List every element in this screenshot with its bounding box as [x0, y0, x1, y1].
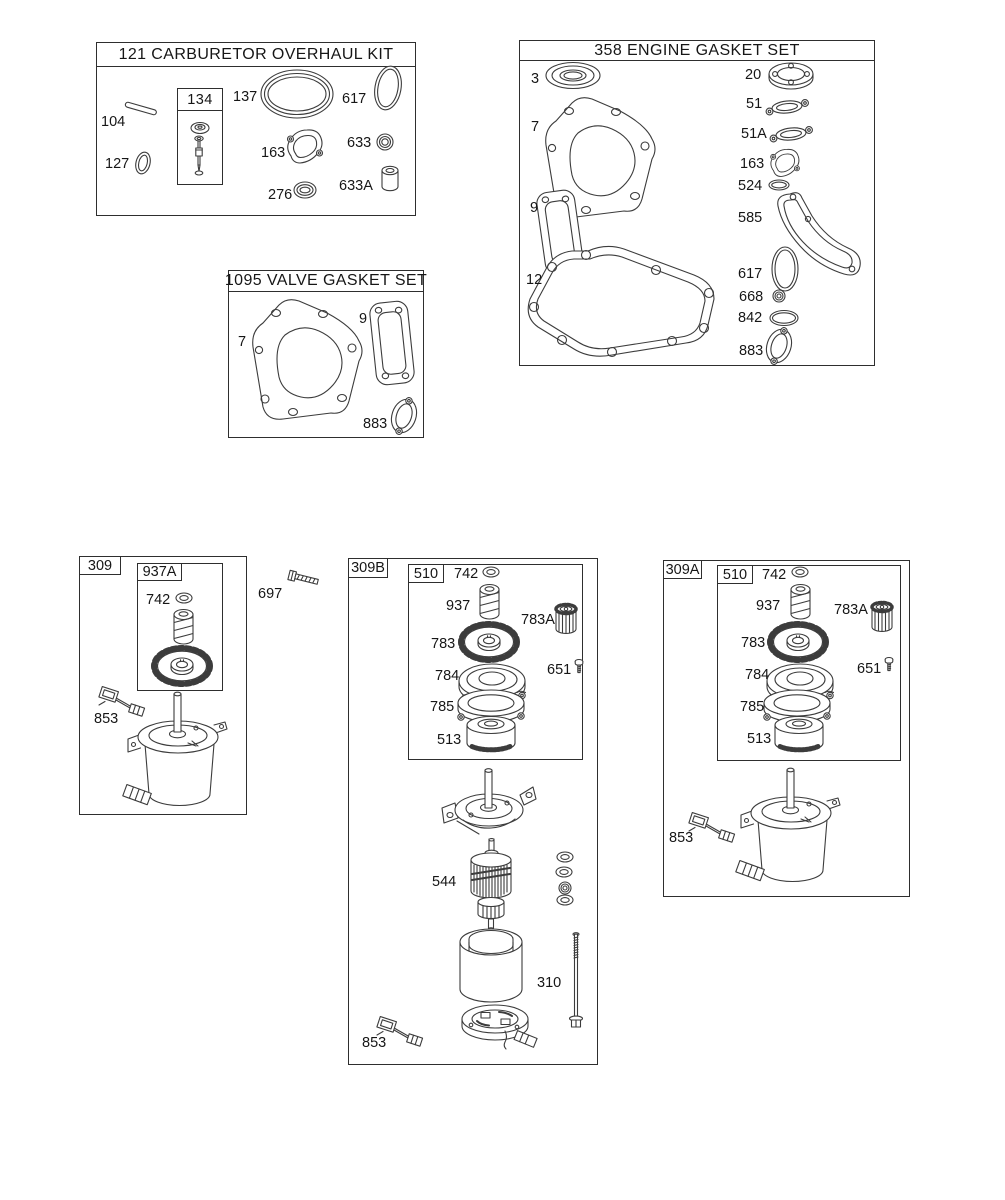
part-label-20: 20: [745, 68, 761, 83]
part-label-842: 842: [738, 311, 762, 326]
part-label-784: 784: [745, 668, 769, 683]
part-label-524: 524: [738, 179, 762, 194]
part-label-783A: 783A: [834, 603, 868, 618]
section-title-valve-gasket-set: 1095 VALVE GASKET SET: [229, 271, 423, 292]
part-label-51A: 51A: [741, 127, 767, 142]
section-title-carburetor-kit: 121 CARBURETOR OVERHAUL KIT: [97, 43, 415, 67]
part-label-937: 937: [756, 599, 780, 614]
part-label-513: 513: [437, 733, 461, 748]
part-label-633: 633: [347, 136, 371, 151]
subassembly-tag-510-309A: 510: [717, 565, 753, 584]
part-label-127: 127: [105, 157, 129, 172]
subassembly-box-134: 134: [177, 88, 223, 185]
part-label-585: 585: [738, 211, 762, 226]
part-label-617: 617: [738, 267, 762, 282]
part-label-853: 853: [362, 1036, 386, 1051]
part-label-544: 544: [432, 875, 456, 890]
part-label-12: 12: [526, 273, 542, 288]
part-label-104: 104: [101, 115, 125, 130]
bolt-icon: [288, 570, 319, 586]
part-label-668: 668: [739, 290, 763, 305]
subassembly-tag-510-309B: 510: [408, 564, 444, 583]
part-label-785: 785: [740, 700, 764, 715]
part-label-883: 883: [363, 417, 387, 432]
part-label-783A: 783A: [521, 613, 555, 628]
part-label-51: 51: [746, 97, 762, 112]
part-label-9: 9: [530, 201, 538, 216]
part-label-742: 742: [146, 593, 170, 608]
subassembly-box-937A: [137, 563, 223, 691]
part-label-883: 883: [739, 344, 763, 359]
part-label-7: 7: [531, 120, 539, 135]
part-label-617: 617: [342, 92, 366, 107]
part-label-137: 137: [233, 90, 257, 105]
section-tag-309B: 309B: [348, 558, 388, 578]
part-label-742: 742: [762, 568, 786, 583]
part-label-742: 742: [454, 567, 478, 582]
section-tag-309: 309: [79, 556, 121, 575]
part-label-163: 163: [740, 157, 764, 172]
part-label-163: 163: [261, 146, 285, 161]
section-title-engine-gasket-set: 358 ENGINE GASKET SET: [520, 41, 874, 61]
part-label-783: 783: [741, 636, 765, 651]
part-label-276: 276: [268, 188, 292, 203]
section-engine-gasket-set: 358 ENGINE GASKET SET: [519, 40, 875, 366]
part-label-853: 853: [669, 831, 693, 846]
parts-diagram-canvas: 121 CARBURETOR OVERHAUL KIT 358 ENGINE G…: [0, 0, 1005, 1200]
part-label-633A: 633A: [339, 179, 373, 194]
subassembly-tag-937A: 937A: [137, 563, 182, 581]
part-label-513: 513: [747, 732, 771, 747]
part-label-697: 697: [258, 587, 282, 602]
subassembly-label-134: 134: [178, 89, 222, 111]
section-tag-309A: 309A: [663, 560, 702, 579]
part-label-9: 9: [359, 312, 367, 327]
part-label-937: 937: [446, 599, 470, 614]
part-label-651: 651: [547, 663, 571, 678]
part-label-783: 783: [431, 637, 455, 652]
part-label-853: 853: [94, 712, 118, 727]
part-label-651: 651: [857, 662, 881, 677]
section-valve-gasket-set: 1095 VALVE GASKET SET: [228, 270, 424, 438]
part-label-784: 784: [435, 669, 459, 684]
part-label-3: 3: [531, 72, 539, 87]
part-label-7: 7: [238, 335, 246, 350]
part-label-785: 785: [430, 700, 454, 715]
part-label-310: 310: [537, 976, 561, 991]
